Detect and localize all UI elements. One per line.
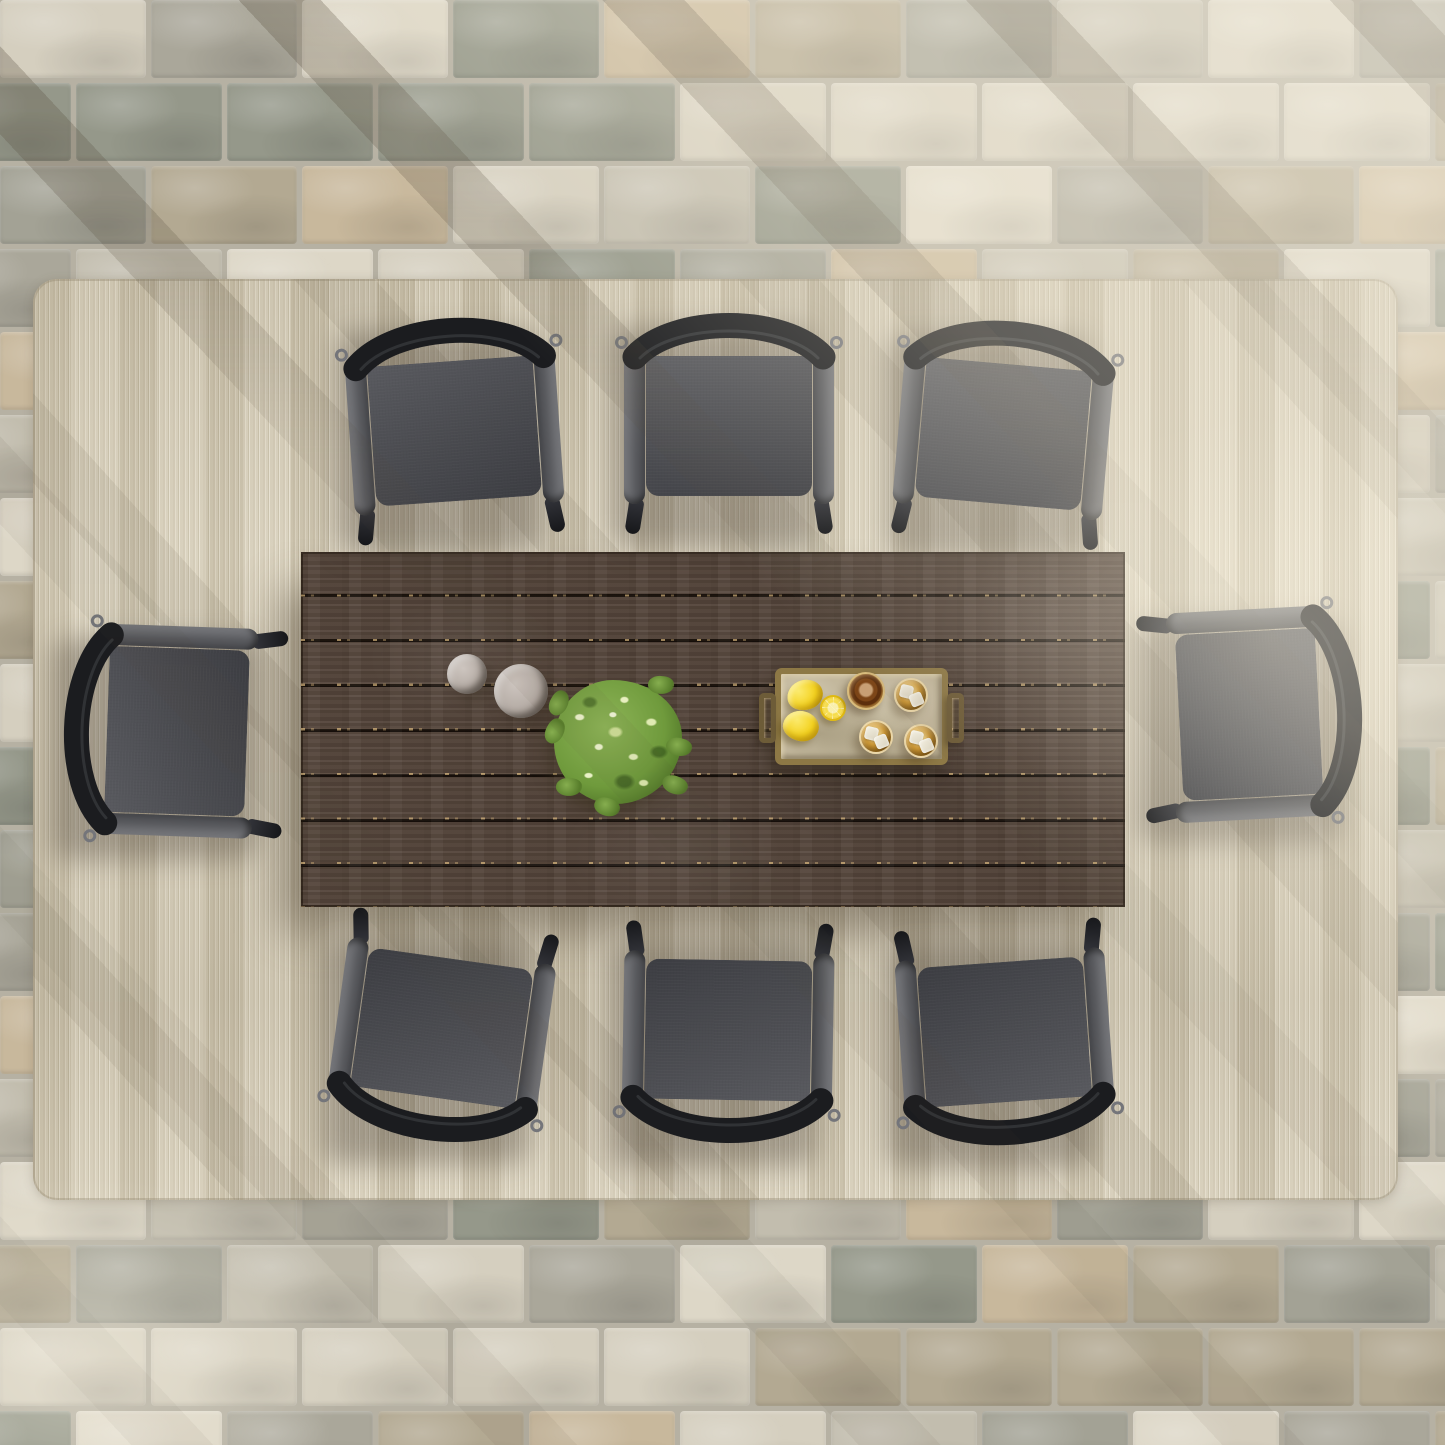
chair-body	[335, 298, 573, 551]
paver-brick	[1435, 1245, 1445, 1323]
paver-brick	[151, 166, 297, 244]
paver-brick	[529, 1245, 675, 1323]
paver-brick	[831, 1245, 977, 1323]
paver-brick	[1284, 1245, 1430, 1323]
lemon-half	[820, 695, 846, 721]
chair-body	[618, 300, 840, 538]
table-plank-gap-light	[301, 552, 1125, 907]
paver-brick	[76, 83, 222, 161]
chair-seat-cushion	[646, 356, 812, 496]
tray-handle-right	[947, 693, 964, 743]
paver-brick	[453, 166, 599, 244]
paver-brick	[1208, 0, 1354, 78]
chair-backrest	[618, 300, 840, 374]
drink-glass	[904, 724, 938, 758]
paver-brick	[755, 1328, 901, 1406]
paver-brick	[1208, 1328, 1354, 1406]
paver-brick	[1133, 1245, 1279, 1323]
paver-brick	[1133, 83, 1279, 161]
paver-brick	[1284, 1411, 1430, 1445]
paver-brick	[604, 0, 750, 78]
chair-body	[47, 616, 293, 846]
paver-brick	[151, 1328, 297, 1406]
paver-brick	[680, 83, 826, 161]
chair-backrest	[335, 298, 562, 387]
paver-brick	[0, 1328, 146, 1406]
paver-brick	[680, 1411, 826, 1445]
paver-brick	[1057, 1328, 1203, 1406]
dining-chair-bottom-left	[330, 916, 552, 1154]
chair-body	[615, 916, 841, 1158]
dining-chair-bottom-right	[894, 920, 1116, 1158]
paver-brick	[1208, 166, 1354, 244]
dining-chair-top-middle	[618, 300, 840, 538]
dining-chair-top-left	[343, 305, 565, 543]
paver-brick	[755, 0, 901, 78]
paver-brick	[76, 1411, 222, 1445]
serving-tray	[775, 668, 948, 765]
paver-brick	[1435, 581, 1445, 659]
paver-brick	[1133, 1411, 1279, 1445]
paver-brick	[982, 1411, 1128, 1445]
paver-brick	[1435, 83, 1445, 161]
drink-glass	[894, 678, 928, 712]
tray-handle-left	[759, 693, 776, 743]
paver-brick	[1284, 83, 1430, 161]
paver-brick	[453, 0, 599, 78]
table-cylinder-small	[447, 654, 487, 694]
paver-brick	[0, 166, 146, 244]
chair-body	[886, 913, 1124, 1166]
paver-brick	[453, 1328, 599, 1406]
dining-table	[301, 552, 1125, 907]
paver-brick	[1435, 747, 1445, 825]
drink-glass	[859, 720, 893, 754]
paver-brick	[1435, 1411, 1445, 1445]
table-cylinder-large	[494, 664, 548, 718]
paver-brick	[604, 166, 750, 244]
paver-brick	[302, 166, 448, 244]
paver-brick	[982, 83, 1128, 161]
paver-brick	[378, 83, 524, 161]
paver-brick	[0, 1245, 71, 1323]
potted-plant	[550, 680, 686, 816]
paver-brick	[378, 1411, 524, 1445]
paver-brick	[227, 1411, 373, 1445]
paver-brick	[1057, 0, 1203, 78]
carafe	[847, 672, 885, 710]
chair-backrest	[47, 616, 129, 840]
paver-brick	[1435, 1079, 1445, 1157]
paver-brick	[906, 166, 1052, 244]
paver-brick	[831, 83, 977, 161]
chair-backrest	[615, 1080, 838, 1158]
paver-brick	[982, 1245, 1128, 1323]
paver-brick	[227, 83, 373, 161]
paver-brick	[302, 1328, 448, 1406]
paver-brick	[0, 83, 71, 161]
paver-brick	[1435, 249, 1445, 327]
plant-sprig	[555, 777, 582, 797]
dining-chair-left-head	[59, 612, 281, 850]
paver-brick	[906, 0, 1052, 78]
scene	[0, 0, 1445, 1445]
dining-chair-bottom-middle	[617, 918, 839, 1156]
paver-brick	[227, 1245, 373, 1323]
paver-brick	[1359, 0, 1445, 78]
paver-brick	[680, 1245, 826, 1323]
ice-cube	[908, 691, 925, 708]
paver-brick	[755, 166, 901, 244]
paver-brick	[604, 1328, 750, 1406]
dining-chair-right-head	[1145, 595, 1367, 833]
paver-brick	[1359, 166, 1445, 244]
paver-brick	[76, 1245, 222, 1323]
paver-brick	[1435, 415, 1445, 493]
paver-brick	[0, 1411, 71, 1445]
paver-brick	[151, 0, 297, 78]
ice-cube	[873, 733, 890, 750]
dining-chair-top-right	[893, 308, 1115, 546]
paver-brick	[906, 1328, 1052, 1406]
paver-brick	[529, 1411, 675, 1445]
chair-body	[1131, 597, 1380, 831]
paver-brick	[1057, 166, 1203, 244]
lemon	[780, 708, 821, 745]
chair-body	[315, 902, 568, 1169]
paver-brick	[0, 0, 146, 78]
paver-brick	[831, 1411, 977, 1445]
paver-brick	[529, 83, 675, 161]
paver-brick	[1359, 1328, 1445, 1406]
chair-body	[883, 299, 1125, 555]
ice-cube	[918, 737, 935, 754]
paver-brick	[1435, 913, 1445, 991]
chair-backrest	[1295, 597, 1381, 823]
chair-backrest	[897, 1076, 1124, 1165]
paver-brick	[378, 1245, 524, 1323]
paver-brick	[302, 0, 448, 78]
